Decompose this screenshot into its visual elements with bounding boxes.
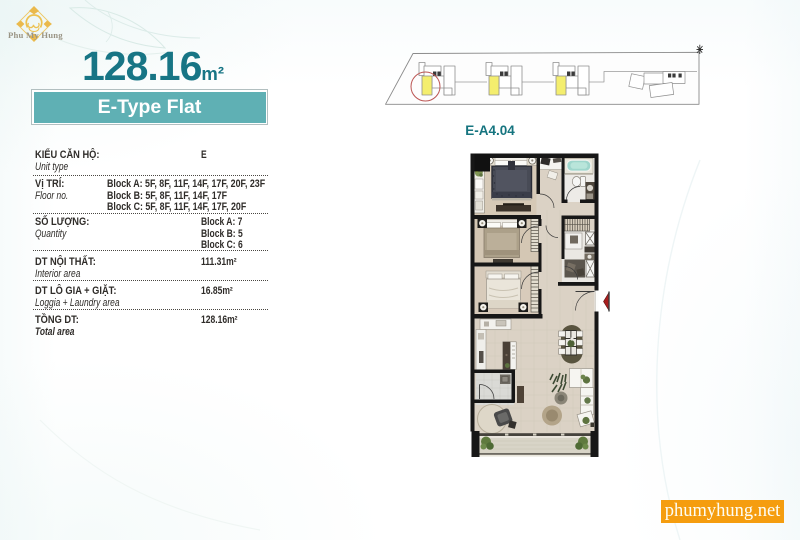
svg-text:Phu My Hung: Phu My Hung xyxy=(8,30,63,40)
